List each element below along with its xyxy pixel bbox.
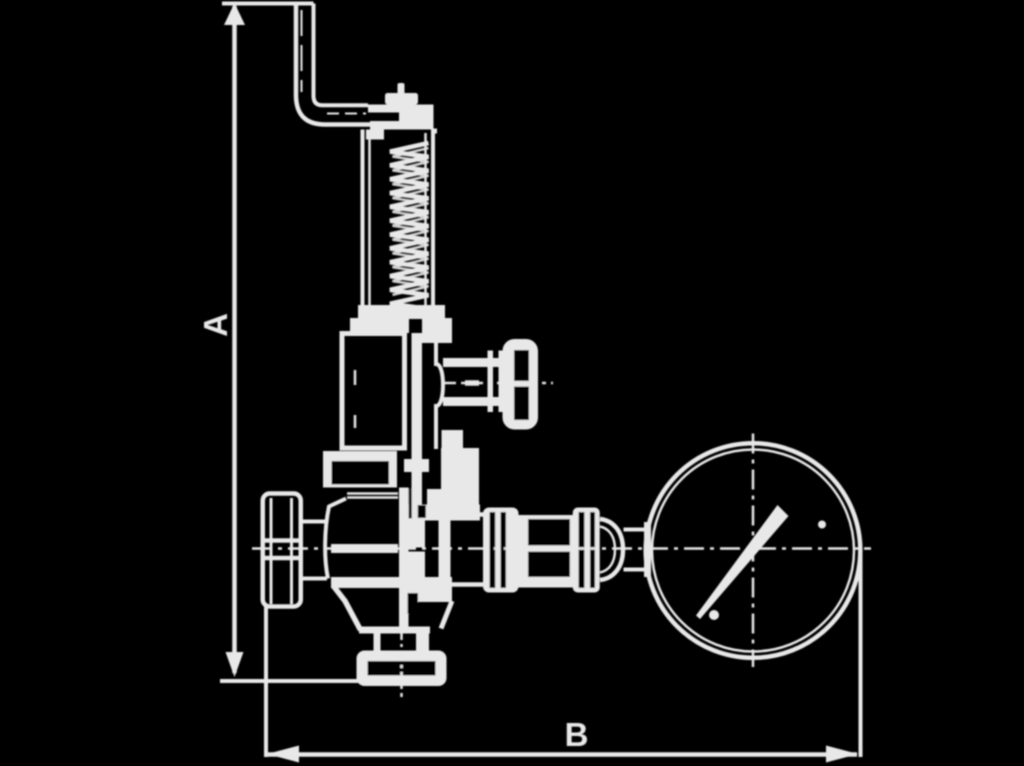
svg-text:B: B [565, 716, 589, 753]
svg-text:A: A [197, 313, 234, 337]
